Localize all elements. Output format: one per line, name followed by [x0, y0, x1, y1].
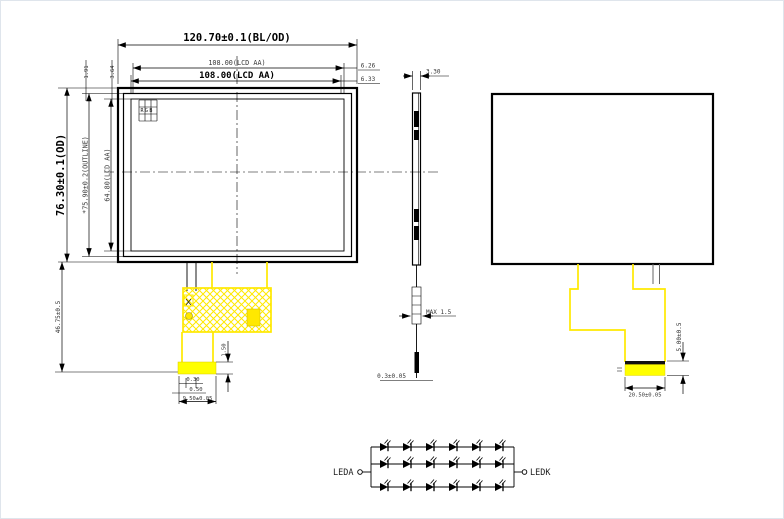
fpc-back-right-edge: [633, 264, 665, 362]
fpc-back-left-edge: [570, 264, 625, 362]
led-symbol: [380, 457, 391, 469]
led-anode-label: LEDA: [333, 468, 353, 478]
dim-thickness: 3.30: [426, 69, 441, 76]
fpc-connector-tab: [178, 362, 216, 374]
back-panel-outline: [492, 94, 713, 264]
dim-tab-width: 9.50±0.05: [183, 396, 213, 402]
led-symbol: [472, 440, 483, 452]
dim-back-tab-height: 5.00±0.5: [676, 322, 683, 351]
dim-right-gap-bottom: 6.33: [361, 76, 376, 83]
led-circuit-diagram: LEDA LEDK: [333, 440, 551, 492]
dim-fpc-bend: MAX 1.5: [426, 309, 452, 316]
dim-lcd-aa-top: 108.00(LCD AA): [199, 71, 275, 81]
dim-right-gap-top: 6.26: [361, 63, 376, 70]
dim-top-margin-2: 3.64: [110, 65, 116, 79]
drawing-canvas: RGB 120.70±0.1(BL/OD) 108.00(LCD AA) 6.2…: [0, 0, 784, 519]
rgb-label: RGB: [141, 108, 154, 114]
fpc-fold-stack: [412, 287, 421, 324]
dim-tab-pitch: 0.50: [189, 387, 202, 393]
cathode-terminal: [522, 470, 527, 475]
led-symbol: [403, 457, 414, 469]
led-symbol: [472, 457, 483, 469]
dim-tab-offset: 0.30: [186, 377, 199, 383]
led-symbol: [403, 480, 414, 492]
led-symbol: [426, 440, 437, 452]
dim-fpc-length: 46.75±0.5: [55, 300, 62, 333]
dim-top-margin-1: 1.91: [84, 65, 90, 78]
led-symbol: [449, 440, 460, 452]
active-area: [131, 99, 344, 251]
engineering-drawing: RGB 120.70±0.1(BL/OD) 108.00(LCD AA) 6.2…: [0, 0, 784, 519]
fpc-tab-contact-strip: [625, 361, 665, 365]
dim-outline-left: *75.90±0.2(OUTLINE): [82, 136, 90, 214]
dim-aa-left: 64.80(LCD AA): [104, 148, 112, 201]
anode-terminal: [358, 470, 363, 475]
rgb-pixel-marker: RGB: [139, 100, 157, 121]
led-symbol: [380, 480, 391, 492]
led-symbol: [495, 480, 506, 492]
dim-fpc-thickness: 0.3±0.05: [377, 373, 406, 380]
led-symbol: [403, 440, 414, 452]
dim-lcd-top-small: 108.00(LCD AA): [208, 59, 265, 67]
led-symbol: [426, 457, 437, 469]
front-view: RGB 120.70±0.1(BL/OD) 108.00(LCD AA) 6.2…: [55, 32, 438, 404]
led-symbol: [495, 440, 506, 452]
fpc-hole: [186, 313, 193, 320]
dim-bl-od: 120.70±0.1(BL/OD): [183, 32, 290, 44]
led-symbol: [426, 480, 437, 492]
dim-back-tab-width: 20.50±0.05: [628, 393, 661, 399]
bezel-opening: [124, 94, 352, 257]
fpc-component-pad: [247, 309, 260, 326]
led-symbol: [449, 480, 460, 492]
led-symbol: [449, 457, 460, 469]
dim-tab-height: 1.50: [222, 343, 228, 356]
dim-od-left: 76.30±0.1(OD): [55, 134, 67, 216]
fpc-back-connector-tab: [625, 365, 665, 376]
led-symbol: [380, 440, 391, 452]
fpc-component-small: [184, 295, 193, 306]
led-symbol: [495, 457, 506, 469]
led-cathode-label: LEDK: [530, 468, 551, 478]
led-symbol: [472, 480, 483, 492]
back-view: 5.00±0.5 20.50±0.05: [492, 94, 713, 399]
side-view: 3.30 MAX 1.5 0.3±0.05: [377, 69, 456, 381]
